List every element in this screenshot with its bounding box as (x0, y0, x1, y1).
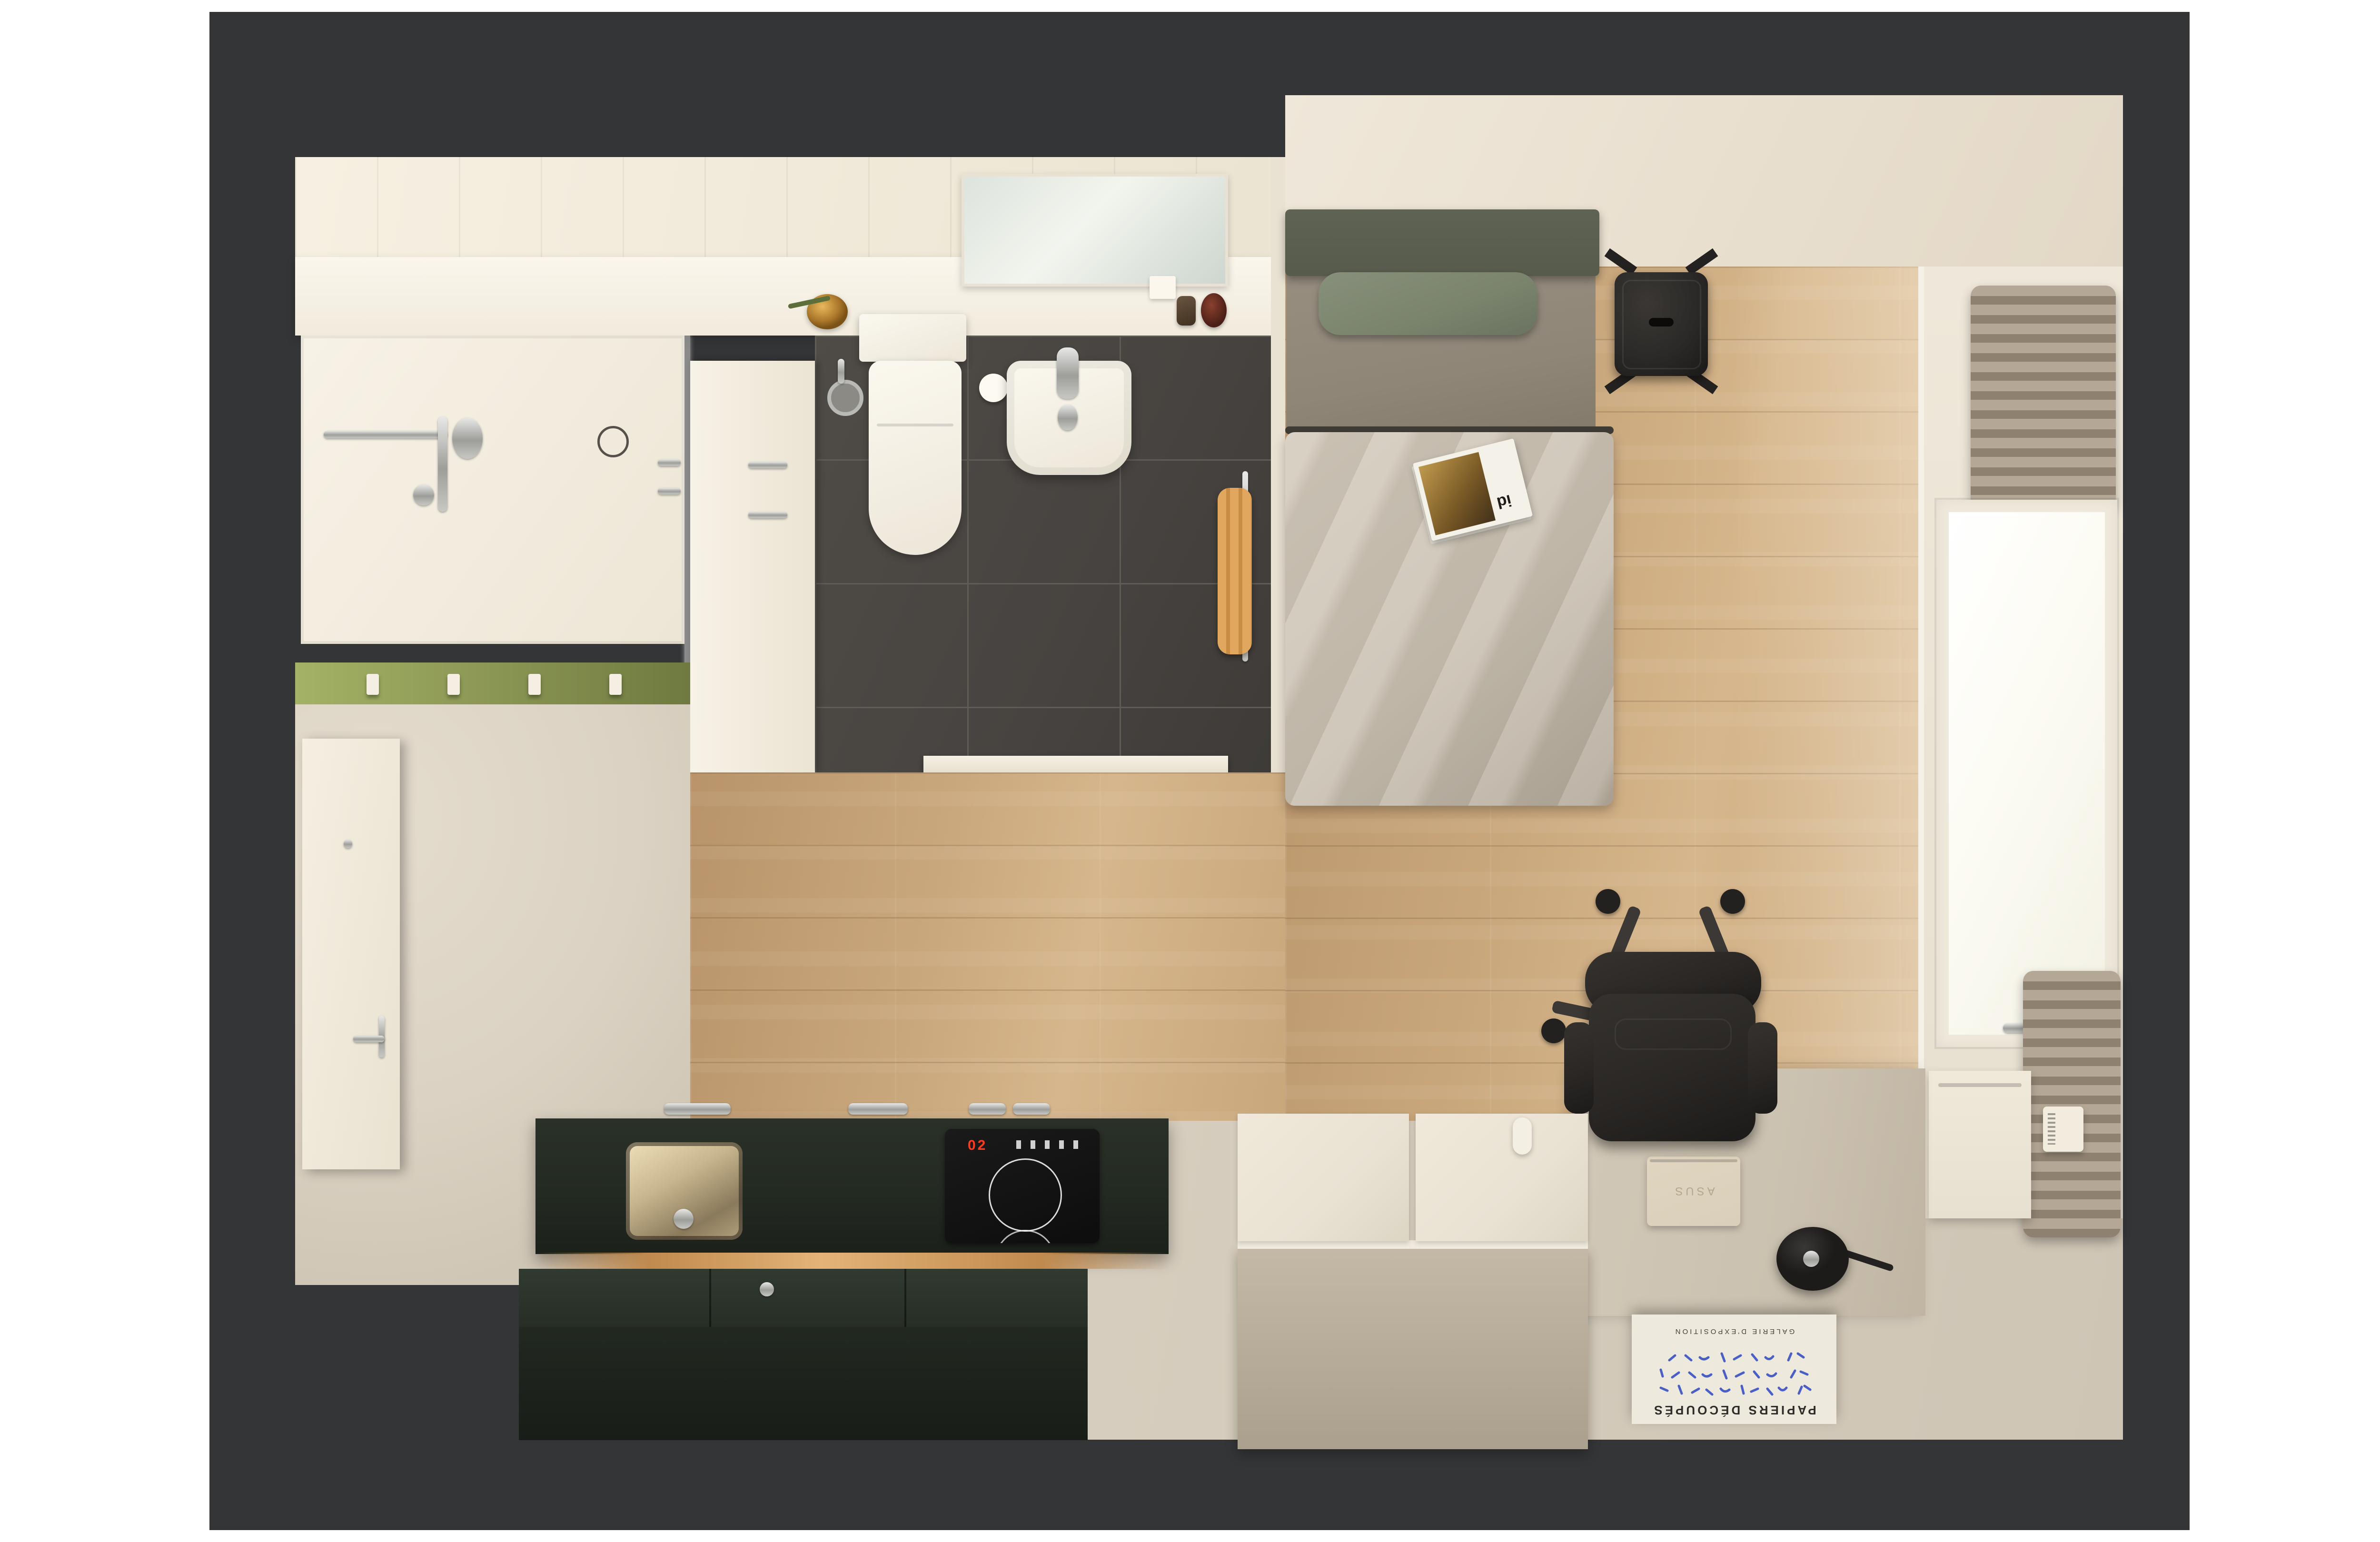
shower-tray (301, 336, 684, 644)
bed-headboard (1285, 209, 1599, 276)
vanity-mirror (962, 174, 1228, 287)
toiletry-bottle (1177, 296, 1196, 326)
light-switch (1150, 276, 1176, 299)
orange-towel (1218, 488, 1252, 654)
bench-front (1238, 1248, 1588, 1449)
window-light-on-floor (1733, 267, 1923, 1121)
coat-hook-4 (609, 674, 622, 695)
storage-bench (1238, 1114, 1588, 1449)
magazine-logo: id (1495, 491, 1514, 512)
hob-display: 02 (968, 1137, 987, 1154)
bench-top-panel-left (1238, 1114, 1409, 1241)
art-print: PAPIERS DÉCOUPÉS GALERIE D'EXPOSITION (1632, 1315, 1836, 1424)
bed-pillow (1319, 272, 1537, 335)
curtain-bunch-top (1971, 286, 2116, 509)
sink-drain (1058, 405, 1078, 430)
entrance-door (302, 739, 400, 1169)
kitchen-island (519, 1269, 1088, 1440)
magazine-cover-photo (1418, 452, 1496, 535)
toilet-seat-line (877, 424, 953, 426)
coat-hook (367, 674, 379, 695)
toilet-brush-handle (838, 359, 844, 384)
wall-vent-switch (2043, 1107, 2083, 1152)
radiator-slot (1938, 1083, 2022, 1087)
coat-hook-3 (528, 674, 541, 695)
curtain-bunch-bottom (2023, 971, 2121, 1237)
kitchen-cabinet-handle-3 (969, 1103, 1006, 1115)
island-worktop (519, 1269, 1088, 1327)
bench-top-panel-right (1416, 1114, 1588, 1241)
render-canvas: 02 id ASUS (0, 0, 2380, 1542)
toilet (869, 361, 962, 555)
chair-caster-3 (1541, 1018, 1566, 1043)
sink-faucet (1057, 347, 1079, 399)
glass-partition-handle (658, 459, 681, 466)
cabinet-handle (748, 462, 787, 468)
art-print-pattern (1648, 1342, 1820, 1399)
hallway-wood-floor (690, 772, 1285, 1121)
desk-lamp-bulb (1803, 1251, 1819, 1267)
island-front (519, 1327, 1088, 1440)
shower-valve-knob (413, 484, 434, 505)
kitchen-cabinet-handle (664, 1103, 731, 1115)
bench-rail (1513, 1117, 1532, 1155)
island-seam-2 (904, 1269, 906, 1327)
laptop-logo: ASUS (1647, 1184, 1740, 1197)
kitchen-cabinet-handle-4 (1013, 1103, 1050, 1115)
metal-stool (1615, 272, 1708, 376)
island-tap-knob (760, 1282, 774, 1296)
bench-lip (1238, 1240, 1588, 1249)
laptop-hinge (1650, 1159, 1737, 1162)
chair-seat-seam (1615, 1018, 1732, 1050)
shower-head (452, 418, 483, 459)
shower-arm (324, 431, 447, 438)
laptop: ASUS (1647, 1156, 1740, 1226)
window (1936, 500, 2117, 1047)
toilet-brush-icon (827, 380, 863, 416)
partition-wall-strip (1271, 157, 1285, 772)
baseboard (1918, 267, 1924, 1121)
induction-hob: 02 (945, 1129, 1100, 1243)
coat-rack-wall (295, 662, 690, 704)
kitchen-cabinet-handle-2 (848, 1103, 908, 1115)
door-peephole (344, 840, 352, 848)
island-seam (709, 1269, 711, 1327)
hob-ring (989, 1158, 1062, 1232)
under-cabinet-light (535, 1253, 1169, 1269)
kitchen-sink-drain (674, 1209, 694, 1229)
stool-handle-slot (1649, 318, 1674, 326)
bathroom-door (923, 756, 1228, 772)
hob-ring-2 (995, 1230, 1055, 1243)
glass-partition-handle-2 (658, 488, 681, 494)
door-handle-lever (353, 1036, 385, 1042)
bathroom-cabinet (690, 361, 815, 772)
chair-caster (1596, 889, 1620, 914)
art-print-subtitle: GALERIE D'EXPOSITION (1632, 1327, 1836, 1335)
chair-seat (1589, 994, 1755, 1141)
chair-armrest-right (1748, 1022, 1777, 1114)
hob-controls (1016, 1140, 1088, 1149)
chair-caster-2 (1720, 889, 1745, 914)
toilet-cistern (859, 314, 966, 362)
chair-armrest-left (1564, 1022, 1594, 1114)
cabinet-handle-2 (748, 512, 787, 518)
art-print-title: PAPIERS DÉCOUPÉS (1632, 1403, 1836, 1417)
shower-drain (597, 426, 629, 457)
vent-grill (2048, 1113, 2055, 1145)
coat-hook-2 (447, 674, 460, 695)
window-glass (1949, 512, 2105, 1035)
toiletry-bottle-2 (1201, 293, 1227, 327)
radiator-panel (1929, 1071, 2031, 1218)
shower-riser (438, 416, 447, 512)
toilet-paper-holder (979, 374, 1008, 402)
